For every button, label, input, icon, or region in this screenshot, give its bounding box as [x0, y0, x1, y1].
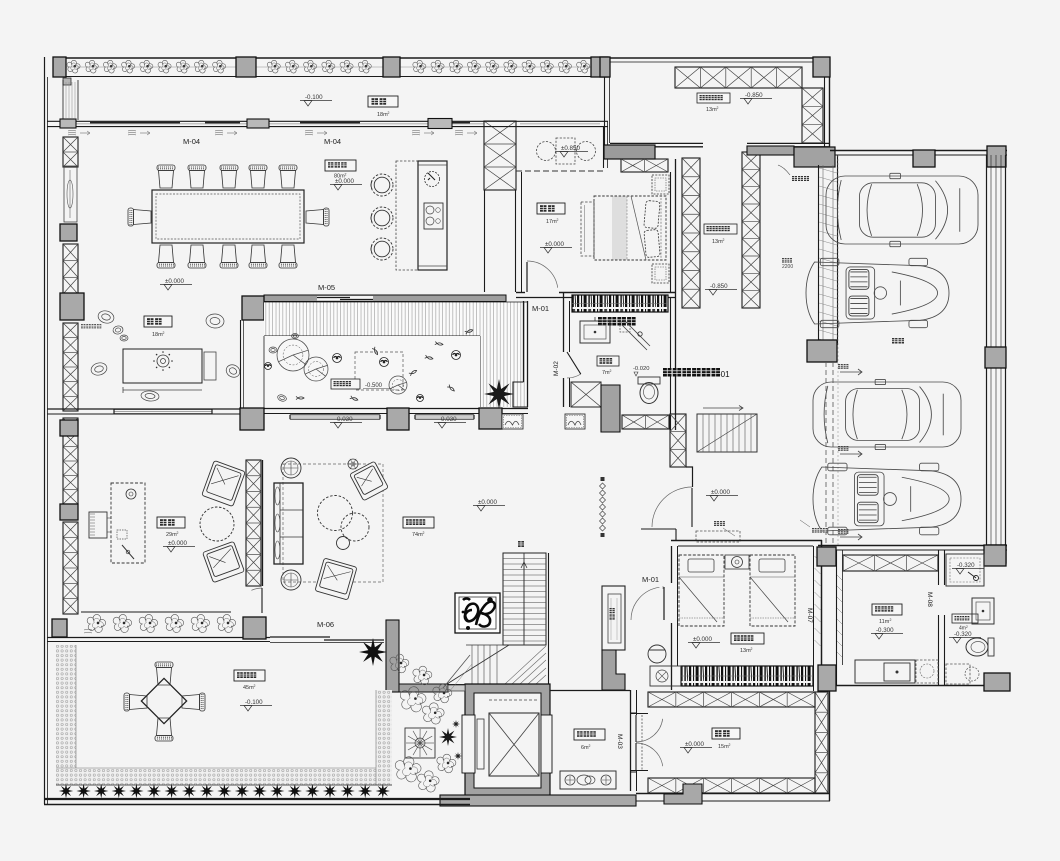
svg-text:18m: 18m [377, 112, 388, 118]
svg-text:-0.020: -0.020 [633, 366, 649, 372]
svg-text:-0.320: -0.320 [957, 562, 975, 569]
svg-text:-0.300: -0.300 [876, 627, 894, 634]
svg-text:2: 2 [966, 625, 968, 629]
svg-text:29m: 29m [166, 532, 177, 538]
svg-text:2: 2 [890, 618, 892, 622]
svg-text:M-01: M-01 [642, 575, 659, 584]
svg-text:2: 2 [729, 743, 731, 747]
svg-text:-0.850: -0.850 [745, 92, 763, 99]
svg-text:17m: 17m [546, 219, 557, 225]
svg-text:M-01: M-01 [532, 304, 549, 313]
svg-text:-0.030: -0.030 [335, 416, 353, 423]
svg-text:2: 2 [423, 531, 425, 535]
svg-text:2: 2 [177, 531, 179, 535]
svg-text:45m: 45m [243, 685, 254, 691]
svg-text:74m: 74m [412, 532, 423, 538]
svg-text:-0.030: -0.030 [439, 416, 457, 423]
svg-text:±0.000: ±0.000 [478, 499, 497, 506]
svg-text:-0.320: -0.320 [954, 631, 972, 638]
svg-text:15m: 15m [718, 744, 729, 750]
svg-text:M-05: M-05 [318, 283, 335, 292]
svg-text:2: 2 [557, 218, 559, 222]
svg-text:2: 2 [345, 173, 347, 177]
svg-text:±0.000: ±0.000 [545, 241, 564, 248]
svg-text:M-04: M-04 [183, 137, 200, 146]
svg-text:2: 2 [589, 744, 591, 748]
svg-text:13m: 13m [712, 239, 723, 245]
svg-text:2: 2 [717, 106, 719, 110]
svg-text:M-02: M-02 [553, 361, 560, 376]
svg-text:2: 2 [723, 238, 725, 242]
svg-text:-0.850: -0.850 [710, 283, 728, 290]
svg-text:M-03: M-03 [616, 734, 623, 749]
svg-text:18m: 18m [152, 332, 163, 338]
svg-text:2: 2 [254, 684, 256, 688]
svg-text:13m: 13m [740, 648, 751, 654]
svg-text:2: 2 [163, 331, 165, 335]
svg-text:2: 2 [751, 647, 753, 651]
svg-text:2: 2 [388, 111, 390, 115]
svg-text:±0.000: ±0.000 [693, 636, 712, 643]
svg-text:M-07: M-07 [806, 608, 813, 623]
svg-text:2200: 2200 [782, 264, 793, 270]
svg-text:±0.000: ±0.000 [685, 741, 704, 748]
svg-text:-0.100: -0.100 [245, 699, 263, 706]
svg-text:-01: -01 [718, 370, 730, 379]
svg-text:2: 2 [610, 369, 612, 373]
svg-text:±0.000: ±0.000 [335, 178, 354, 185]
svg-text:±0.000: ±0.000 [165, 278, 184, 285]
svg-text:M-08: M-08 [926, 592, 933, 607]
svg-text:±0.000: ±0.000 [711, 489, 730, 496]
svg-text:13m: 13m [706, 107, 717, 113]
svg-text:M-04: M-04 [324, 137, 341, 146]
svg-text:11m: 11m [879, 619, 890, 625]
svg-text:-0.500: -0.500 [365, 383, 383, 389]
svg-text:-0.100: -0.100 [305, 94, 323, 101]
svg-text:±0.850: ±0.850 [561, 145, 580, 152]
svg-text:±0.000: ±0.000 [168, 540, 187, 547]
svg-text:M-06: M-06 [317, 620, 334, 629]
